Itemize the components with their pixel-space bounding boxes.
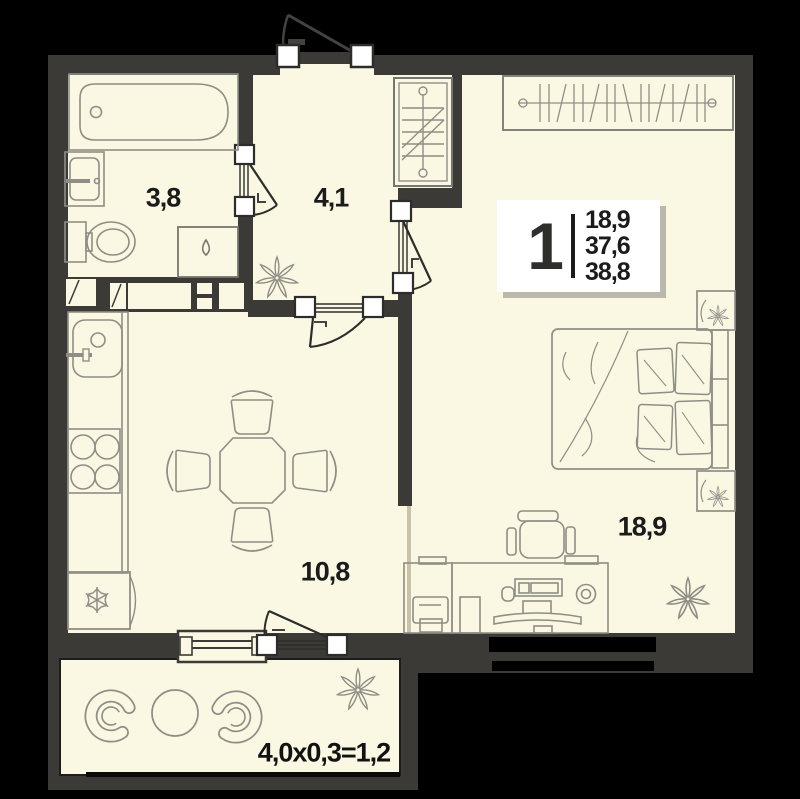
room-count: 1: [527, 213, 561, 279]
kitchen-living-area-label: 10,8: [301, 557, 350, 588]
floorplan-drawing: [0, 0, 800, 799]
apartment-area-value: 37,6: [585, 233, 630, 259]
balcony-structure: [48, 659, 418, 790]
badge-divider: [571, 214, 575, 278]
entrance-door: [277, 15, 373, 67]
floorplan: 3,8 4,1 10,8 18,9 1 18,9 37,6 38,8 4,0x0…: [0, 0, 800, 799]
hallway-area-label: 4,1: [314, 183, 349, 214]
balcony-area-label: 4,0x0,3=1,2: [258, 738, 390, 769]
apartment-info-badge: 1 18,9 37,6 38,8: [497, 200, 660, 292]
kitchen-window: [178, 631, 266, 662]
total-area-value: 38,8: [585, 259, 630, 285]
living-area-value: 18,9: [585, 207, 630, 233]
bedroom-area-label: 18,9: [618, 512, 667, 543]
bathroom-area-label: 3,8: [146, 183, 181, 214]
dining-table: [220, 438, 285, 503]
